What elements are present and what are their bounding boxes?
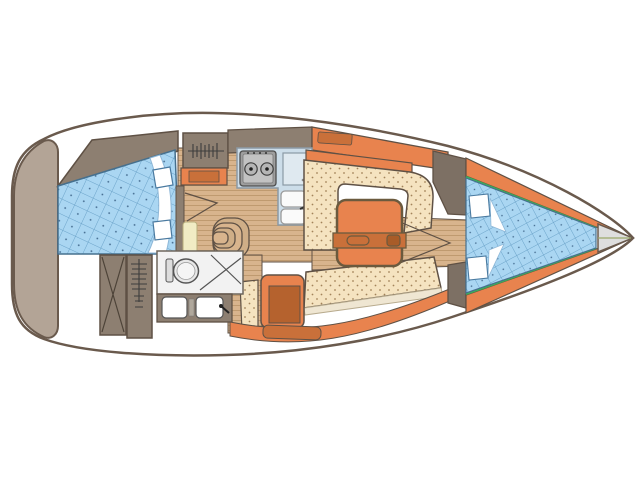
boat-plan-svg xyxy=(0,0,640,480)
toilet-tank xyxy=(166,259,173,282)
head-sink-right xyxy=(196,297,223,318)
companionway-trim xyxy=(183,222,197,253)
aft-pillow-2 xyxy=(153,220,172,240)
fore-bulkhead-bottom xyxy=(448,262,466,308)
head-faucet-base xyxy=(219,304,223,308)
table-latch xyxy=(387,235,400,246)
burner-right-center xyxy=(265,167,269,171)
aft-storage xyxy=(100,255,152,338)
boat-plan-page xyxy=(0,0,640,480)
nav-seat xyxy=(261,275,304,328)
burner-left-center xyxy=(249,167,253,171)
galley-sink-upper xyxy=(281,191,306,207)
table-handle xyxy=(347,236,369,245)
starboard-shelf-locker xyxy=(263,325,321,340)
fore-pillow-2 xyxy=(467,256,488,280)
aft-pillow-1 xyxy=(153,167,173,188)
toilet-seat xyxy=(177,263,195,280)
galley-sink-lower xyxy=(281,209,306,224)
head-sink-left xyxy=(162,297,187,318)
fore-cabin xyxy=(466,158,633,313)
stern-transom xyxy=(14,140,58,338)
vanity-divider xyxy=(189,299,194,316)
step-4 xyxy=(213,232,228,244)
aft-seat-cushion xyxy=(189,171,219,182)
head-compartment xyxy=(157,251,243,322)
seat-cushion xyxy=(269,286,300,323)
port-shelf-locker xyxy=(318,132,353,145)
fore-pillow-1 xyxy=(469,194,490,218)
